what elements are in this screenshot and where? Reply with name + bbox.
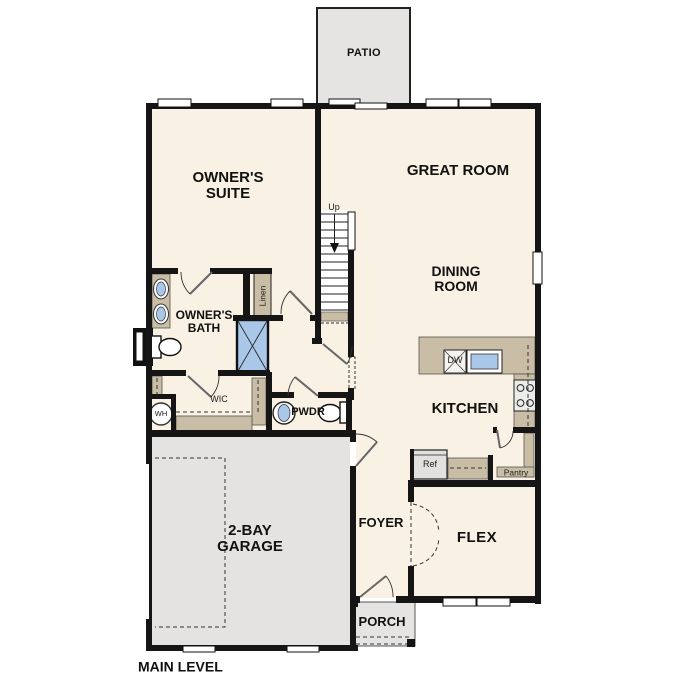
floor-plan-drawing: [0, 0, 687, 687]
room-label-kitchen: KITCHEN: [432, 401, 499, 417]
label-refrigerator: Ref: [423, 460, 437, 470]
stove: [514, 380, 536, 411]
room-label-owners-bath: OWNER'S BATH: [176, 309, 233, 335]
garage-door: [183, 646, 215, 652]
floor-plan: PATIO OWNER'S SUITE GREAT ROOM DINING RO…: [0, 0, 687, 687]
room-label-owners-suite-line2: SUITE: [192, 186, 263, 202]
label-linen: Linen: [258, 286, 267, 307]
room-label-owners-suite: OWNER'S SUITE: [192, 170, 263, 202]
room-label-foyer: FOYER: [359, 516, 404, 530]
room-label-garage-line1: 2-BAY: [228, 522, 272, 539]
room-label-wic: WIC: [210, 395, 228, 405]
room-label-flex: FLEX: [457, 530, 497, 546]
room-label-owners-bath-line1: OWNER'S: [176, 308, 233, 322]
room-label-dining-line1: DINING: [432, 263, 481, 279]
label-pantry: Pantry: [504, 468, 529, 477]
room-label-garage-line2: GARAGE: [217, 539, 283, 555]
plan-title: MAIN LEVEL: [138, 659, 223, 674]
window: [443, 598, 476, 606]
window: [426, 99, 458, 107]
wic-shelf-right: [252, 378, 266, 425]
garage-door: [287, 646, 319, 652]
room-label-porch: PORCH: [359, 615, 406, 629]
patio-slider-panel: [355, 103, 387, 109]
room-label-garage: 2-BAY GARAGE: [217, 523, 283, 555]
window: [158, 99, 191, 107]
window: [271, 99, 303, 107]
room-label-owners-bath-line2: BATH: [176, 322, 233, 335]
window: [533, 252, 542, 284]
stair-railing: [348, 212, 355, 250]
room-label-patio: PATIO: [347, 48, 381, 60]
room-label-great-room: GREAT ROOM: [407, 163, 509, 179]
label-water-heater: WH: [155, 410, 168, 418]
room-label-dining-line2: ROOM: [432, 279, 481, 294]
window: [477, 598, 510, 606]
label-dishwasher: DW: [448, 356, 463, 366]
room-label-dining-room: DINING ROOM: [432, 264, 481, 294]
kitchen-sink: [467, 350, 502, 373]
label-stairs-up: Up: [328, 203, 340, 213]
room-label-owners-suite-line1: OWNER'S: [192, 169, 263, 186]
understair-shelf: [321, 312, 348, 321]
room-label-powder: PWDR: [291, 407, 325, 419]
window: [459, 99, 491, 107]
shower: [237, 320, 268, 372]
wic-shelf-bottom: [176, 416, 252, 431]
